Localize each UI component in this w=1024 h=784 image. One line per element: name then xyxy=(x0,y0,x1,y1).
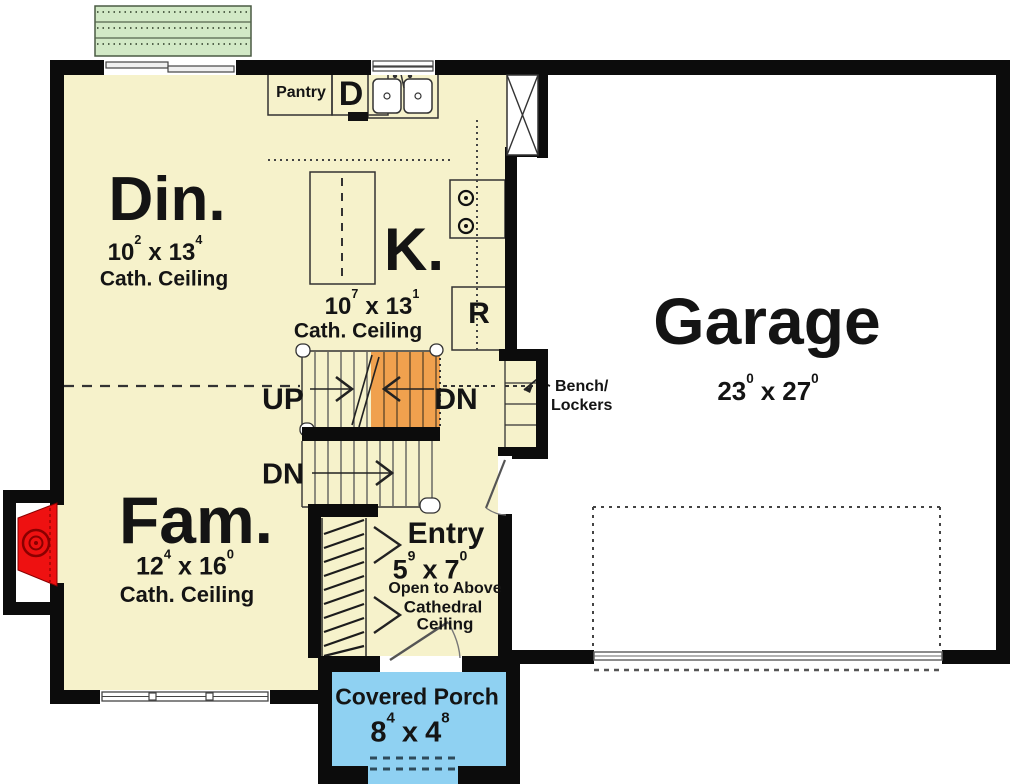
room-name-garage: Garage xyxy=(653,288,880,354)
wall-bench-right xyxy=(536,349,548,459)
dim-value: 10 xyxy=(108,239,135,266)
entry-note-line1: Open to Above xyxy=(388,581,501,597)
dim-separator: x xyxy=(178,553,192,581)
dining-dimensions: 102x134 xyxy=(108,241,203,265)
wall-porch-bottom-left xyxy=(318,766,368,784)
bench-lockers-label-line1: Bench/ xyxy=(555,379,608,395)
floor-plan: Din. 102x134 Cath. Ceiling K. 107x131 Ca… xyxy=(0,0,1024,784)
stairs-up-label: UP xyxy=(262,385,304,415)
wall-left-upper xyxy=(50,60,64,505)
floor-plan-drawing xyxy=(0,0,1024,784)
dim-value: 16 xyxy=(199,553,227,581)
dim-sup: 0 xyxy=(811,371,819,386)
dim-value: 4 xyxy=(425,717,441,749)
dim-value: 8 xyxy=(370,717,386,749)
dim-separator: x xyxy=(148,239,161,266)
family-ceiling-note: Cath. Ceiling xyxy=(120,584,254,606)
dim-value: 27 xyxy=(782,376,811,406)
dim-sup: 4 xyxy=(164,546,171,561)
garage-storage-dashed xyxy=(593,507,940,648)
room-name-porch: Covered Porch xyxy=(335,686,499,709)
wall-porch-bottom-right xyxy=(458,766,520,784)
chimney-chase xyxy=(507,75,538,155)
dim-separator: x xyxy=(365,293,378,320)
kitchen-dimensions: 107x131 xyxy=(325,295,420,319)
room-name-family: Fam. xyxy=(119,487,273,553)
porch-dimensions: 84x48 xyxy=(370,719,449,748)
kitchen-ceiling-note: Cath. Ceiling xyxy=(294,321,422,342)
dim-value: 13 xyxy=(169,239,196,266)
dim-value: 12 xyxy=(136,553,164,581)
room-name-dining: Din. xyxy=(108,169,225,231)
dim-sup: 1 xyxy=(412,287,419,301)
family-window xyxy=(102,692,268,701)
sink-window xyxy=(373,61,433,71)
dim-value: 13 xyxy=(386,293,413,320)
dishwasher-front xyxy=(348,112,368,121)
room-name-entry: Entry xyxy=(408,519,485,549)
wall-garage-right xyxy=(996,60,1010,664)
family-dimensions: 124x160 xyxy=(136,554,234,579)
dim-sup: 7 xyxy=(351,287,358,301)
dining-ceiling-note: Cath. Ceiling xyxy=(100,269,228,290)
dim-separator: x xyxy=(761,376,775,406)
dishwasher-label: D xyxy=(339,77,364,111)
stairs-down-upper-label: DN xyxy=(434,385,477,415)
dim-sup: 0 xyxy=(746,371,754,386)
dim-sup: 4 xyxy=(195,233,202,247)
pantry-label: Pantry xyxy=(276,85,326,101)
dim-sup: 2 xyxy=(134,233,141,247)
room-name-kitchen: K. xyxy=(384,220,444,280)
dim-value: 10 xyxy=(325,293,352,320)
entry-note-line2: Cathedral xyxy=(404,599,482,616)
deck xyxy=(95,6,251,56)
dim-sup: 0 xyxy=(227,546,234,561)
stair-landing-wall xyxy=(302,427,440,441)
refrigerator-label: R xyxy=(468,299,490,329)
dim-sup: 8 xyxy=(441,710,449,727)
wall-left-lower xyxy=(50,583,64,704)
dim-sup: 9 xyxy=(408,548,416,564)
wall-kitchen-garage xyxy=(505,157,517,355)
dim-separator: x xyxy=(402,717,418,749)
entry-note-line3: Ceiling xyxy=(417,616,474,633)
dim-value: 23 xyxy=(717,376,746,406)
bench-lockers-label-line2: Lockers xyxy=(551,398,612,414)
dim-sup: 4 xyxy=(387,710,395,727)
garage-dimensions: 230x270 xyxy=(717,378,818,404)
dim-sup: 0 xyxy=(460,548,468,564)
wall-closet-left xyxy=(308,504,321,658)
